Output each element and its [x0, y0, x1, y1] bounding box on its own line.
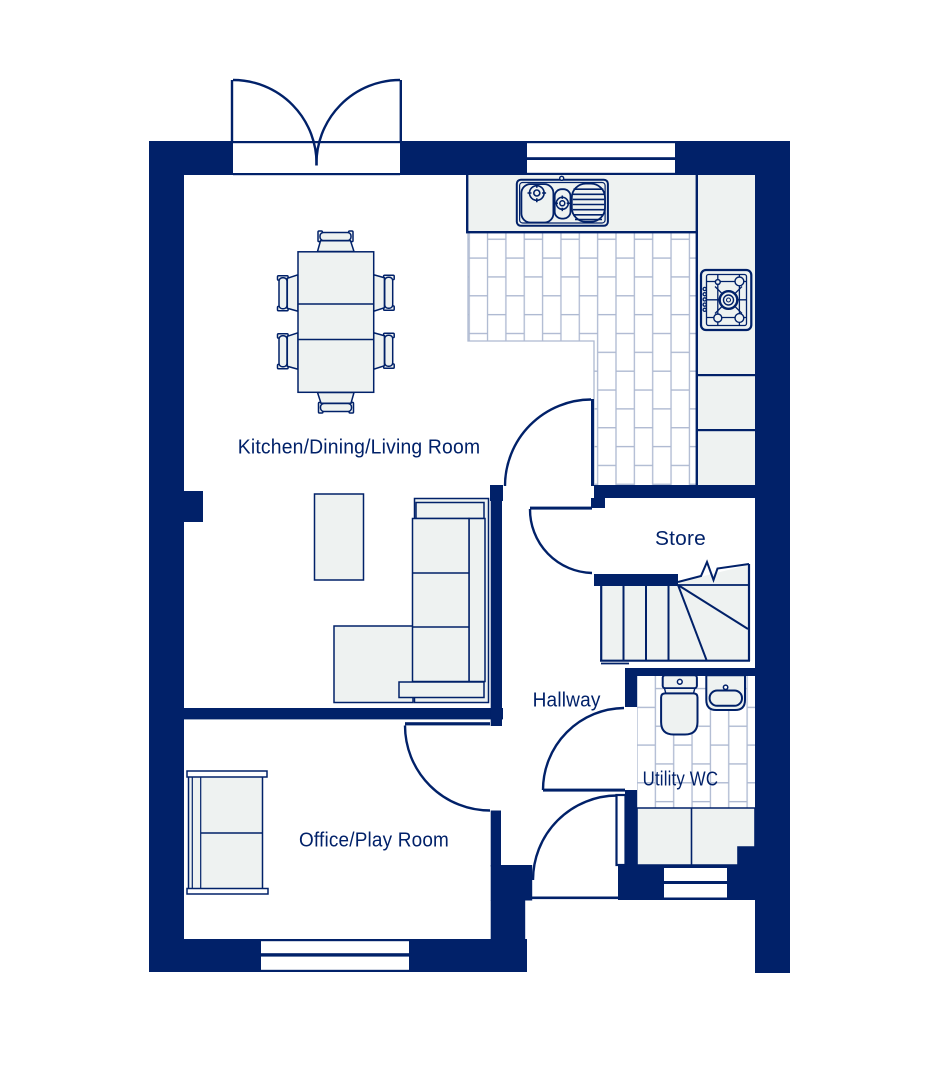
svg-text:Hallway: Hallway [533, 689, 602, 712]
svg-text:Office/Play Room: Office/Play Room [299, 828, 449, 851]
svg-text:Store: Store [655, 527, 706, 550]
svg-text:Utility WC: Utility WC [643, 767, 719, 790]
svg-text:Kitchen/Dining/Living Room: Kitchen/Dining/Living Room [238, 435, 481, 458]
